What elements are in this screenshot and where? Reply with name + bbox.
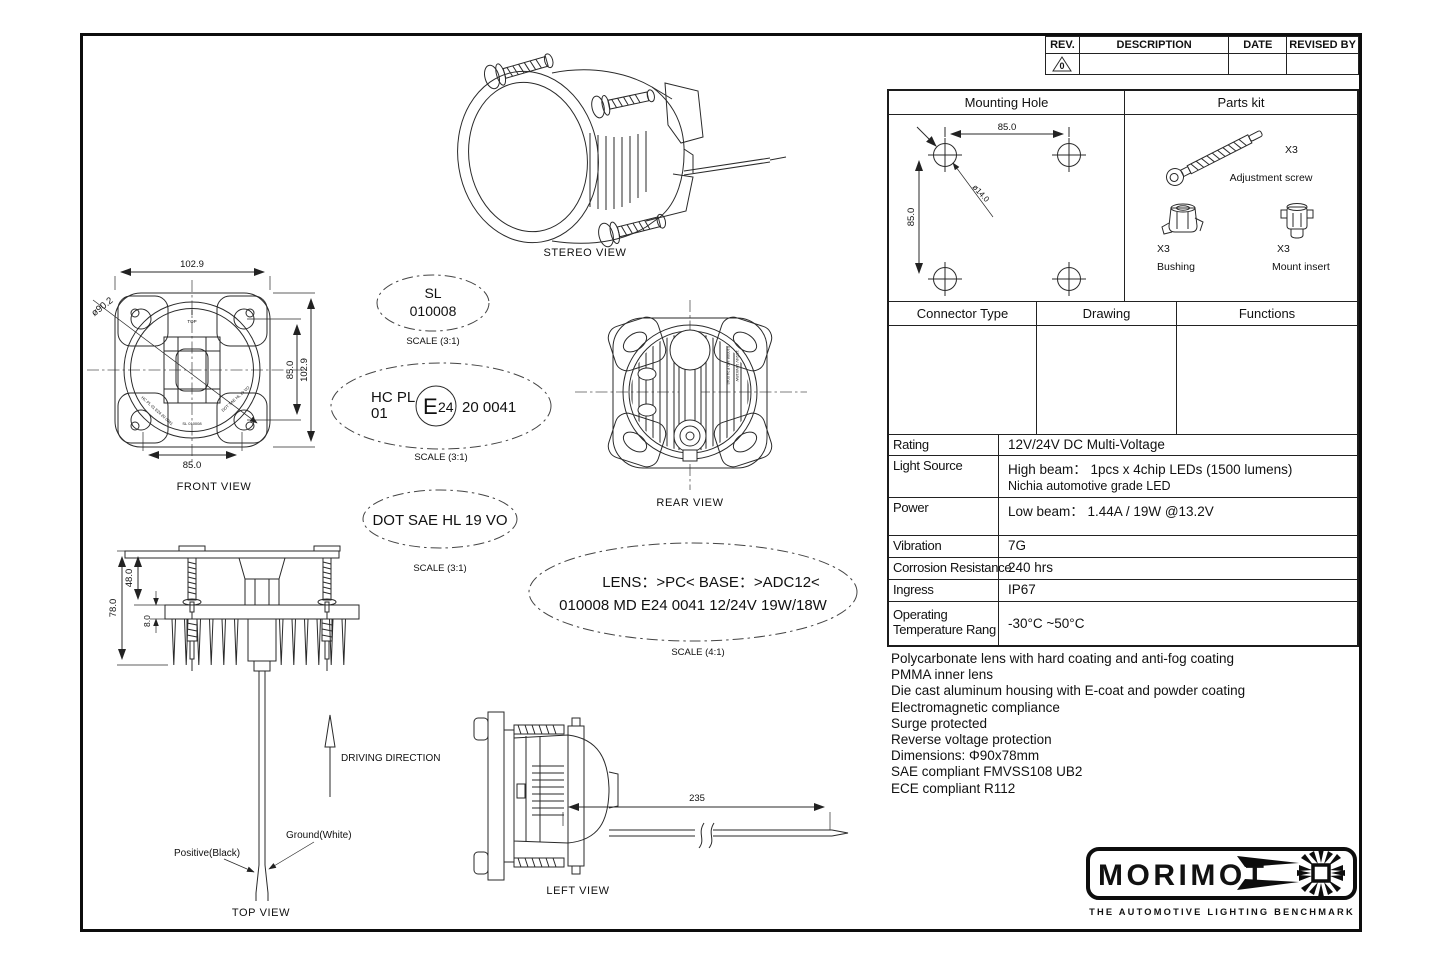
stereo-view: STEREO VIEW — [440, 45, 790, 265]
mount-insert-qty: X3 — [1277, 243, 1290, 255]
revision-data-row: 0 — [1046, 53, 1359, 74]
spec-label-operating-temp: Operating Temperature Rang — [889, 602, 999, 645]
spec-row-light-source: Light Source High beam： 1pcs x 4chip LED… — [889, 455, 1357, 497]
note-line: SAE compliant FMVSS108 UB2 — [891, 764, 1353, 780]
svg-text:0: 0 — [1060, 61, 1065, 71]
stereo-screw-top-left — [482, 48, 556, 90]
driving-direction-label: DRIVING DIRECTION — [341, 753, 440, 764]
hc-e-number: 24 — [438, 399, 454, 415]
sl-scale: SCALE (3:1) — [406, 336, 459, 347]
spec-label-power: Power — [889, 498, 999, 535]
front-dim-right-inner: 85.0 — [285, 361, 296, 380]
mount-insert-label: Mount insert — [1272, 261, 1330, 273]
lens-scale: SCALE (4:1) — [671, 647, 724, 658]
note-line: Reverse voltage protection — [891, 732, 1353, 748]
front-dim-right-outer: 102.9 — [299, 358, 310, 382]
spec-value-light-source: High beam： 1pcs x 4chip LEDs (1500 lumen… — [999, 456, 1357, 497]
note-line: Die cast aluminum housing with E-coat an… — [891, 683, 1353, 699]
spec-value-light-source-line2: Nichia automotive grade LED — [1008, 479, 1357, 493]
connector-header: Connector Type Drawing Functions — [889, 302, 1357, 326]
revision-mark-cell: 0 — [1046, 53, 1080, 74]
front-dim-diameter: ø90.2 — [90, 295, 116, 319]
note-line: Electromagnetic compliance — [891, 700, 1353, 716]
hc-badge: HC PL 01 E 24 20 0041 SCALE (3:1) — [328, 360, 554, 464]
note-line: Dimensions: Φ90x78mm — [891, 748, 1353, 764]
revision-col-description: DESCRIPTION — [1080, 36, 1230, 53]
spec-row-corrosion: Corrosion Resistance 240 hrs — [889, 557, 1357, 579]
front-dim-top: 102.9 — [180, 259, 204, 270]
lens-badge: LENS：>PC< BASE：>ADC12< 010008 MD E24 004… — [526, 540, 866, 660]
hc-scale: SCALE (3:1) — [414, 452, 467, 463]
burst-o-icon — [1297, 849, 1345, 897]
note-line: Polycarbonate lens with hard coating and… — [891, 651, 1353, 667]
bushing-qty: X3 — [1157, 243, 1170, 255]
drawing-col: Drawing — [1037, 302, 1177, 325]
revision-description-cell — [1080, 53, 1230, 74]
revision-table: REV. DESCRIPTION DATE REVISED BY 0 — [1045, 36, 1359, 75]
mounting-hole-title: Mounting Hole — [889, 91, 1125, 114]
top-dim-total: 78.0 — [108, 599, 119, 618]
top-view: 78.0 48.0 8.0 DRIVING DIRECTION Ground(W… — [108, 545, 450, 923]
left-dim-wire: 235 — [689, 793, 705, 804]
spec-value-corrosion: 240 hrs — [999, 558, 1357, 579]
mounting-dim-horizontal: 85.0 — [998, 122, 1017, 133]
logo-tagline: THE AUTOMOTIVE LIGHTING BENCHMARK — [1089, 907, 1355, 917]
sl-line2: 010008 — [410, 303, 457, 319]
rear-view: 010008 MD E24 0041 12/24V 19W/18W REAR V… — [575, 298, 807, 513]
revision-col-revised-by: REVISED BY — [1287, 36, 1359, 53]
spec-value-light-source-line1: High beam： 1pcs x 4chip LEDs (1500 lumen… — [1008, 458, 1357, 478]
spec-value-rating: 12V/24V DC Multi-Voltage — [999, 435, 1357, 455]
bushing-icon — [1162, 204, 1203, 234]
top-view-label: TOP VIEW — [232, 907, 290, 919]
revision-col-rev: REV. — [1046, 36, 1080, 53]
left-view: 235 LEFT VIEW — [468, 702, 864, 900]
spec-label-ingress: Ingress — [889, 580, 999, 601]
hc-e-mark: E — [423, 394, 438, 419]
rear-view-label: REAR VIEW — [656, 497, 723, 509]
front-etch-center: SL 010008 — [182, 421, 202, 426]
spec-row-ingress: Ingress IP67 — [889, 579, 1357, 601]
spec-label-vibration: Vibration — [889, 536, 999, 557]
revision-triangle-icon: 0 — [1051, 55, 1073, 73]
connector-type-cell — [889, 326, 1037, 434]
mounting-hole-diagram: 85.0 85.0 ø14.0 — [889, 115, 1123, 299]
front-dim-bottom: 85.0 — [183, 460, 202, 471]
adjustment-screw-qty: X3 — [1285, 144, 1298, 156]
spec-label-rating: Rating — [889, 435, 999, 455]
spec-label-light-source: Light Source — [889, 456, 999, 497]
mount-insert-icon — [1281, 204, 1313, 239]
right-panel: Mounting Hole Parts kit — [887, 89, 1359, 647]
connector-type-col: Connector Type — [889, 302, 1037, 325]
mounting-hole-cell: 85.0 85.0 ø14.0 — [889, 115, 1125, 301]
stereo-screw-top-mid — [590, 84, 657, 119]
parts-kit-diagram: X3 Adjustment screw X3 Bushing — [1125, 115, 1357, 299]
mounting-parts-body: 85.0 85.0 ø14.0 — [889, 115, 1357, 302]
spec-value-vibration: 7G — [999, 536, 1357, 557]
left-view-label: LEFT VIEW — [546, 885, 609, 897]
lens-line2: 010008 MD E24 0041 12/24V 19W/18W — [559, 597, 828, 614]
revision-header-row: REV. DESCRIPTION DATE REVISED BY — [1046, 36, 1359, 53]
lens-line1: LENS：>PC< BASE：>ADC12< — [602, 574, 820, 591]
revision-revised-cell — [1287, 53, 1359, 74]
spec-value-operating-temp: -30°C ~50°C — [999, 602, 1357, 645]
adjustment-screw-label: Adjustment screw — [1230, 172, 1313, 184]
mounting-dim-vertical: 85.0 — [906, 208, 917, 227]
front-view: TOP 102.9 85.0 85.0 102.9 ø90.2 HC PL 01… — [85, 252, 320, 497]
notes-block: Polycarbonate lens with hard coating and… — [891, 651, 1353, 797]
top-dim-upper: 48.0 — [124, 569, 135, 588]
rear-etch-line1: 010008 MD E24 0041 — [726, 346, 731, 386]
note-line: Surge protected — [891, 716, 1353, 732]
spec-row-power: Power Low beam： 1.44A / 19W @13.2V — [889, 497, 1357, 535]
drawing-sheet: REV. DESCRIPTION DATE REVISED BY 0 Mount… — [0, 0, 1445, 964]
revision-date-cell — [1229, 53, 1287, 74]
front-view-label: FRONT VIEW — [177, 481, 252, 493]
spec-value-power: Low beam： 1.44A / 19W @13.2V — [999, 498, 1357, 535]
spec-row-rating: Rating 12V/24V DC Multi-Voltage — [889, 435, 1357, 455]
bushing-label: Bushing — [1157, 261, 1195, 273]
functions-col: Functions — [1177, 302, 1357, 325]
spec-table: Rating 12V/24V DC Multi-Voltage Light So… — [889, 435, 1357, 645]
note-line: PMMA inner lens — [891, 667, 1353, 683]
hc-right: 20 0041 — [462, 399, 516, 416]
spec-value-ingress: IP67 — [999, 580, 1357, 601]
mounting-parts-header: Mounting Hole Parts kit — [889, 91, 1357, 115]
functions-cell — [1177, 326, 1357, 434]
revision-col-date: DATE — [1229, 36, 1287, 53]
note-line: ECE compliant R112 — [891, 781, 1353, 797]
stereo-wire — [684, 157, 786, 175]
morimoto-logo: MORIMOT THE AUTOMOTIVE LIGHTING BENCHMAR… — [1085, 846, 1360, 922]
spec-label-corrosion: Corrosion Resistance — [889, 558, 999, 579]
spec-row-operating-temp: Operating Temperature Rang -30°C ~50°C — [889, 601, 1357, 645]
hc-left-bottom: 01 — [371, 405, 388, 422]
sl-line1: SL — [424, 285, 441, 301]
parts-kit-cell: X3 Adjustment screw X3 Bushing — [1125, 115, 1357, 301]
dot-text: DOT SAE HL 19 VO — [372, 512, 507, 529]
rear-etch-line2: 12/24V 19W/18W — [735, 350, 740, 382]
stereo-view-label: STEREO VIEW — [544, 247, 627, 259]
parts-kit-title: Parts kit — [1125, 91, 1357, 114]
connector-body — [889, 326, 1357, 435]
spec-row-vibration: Vibration 7G — [889, 535, 1357, 557]
stereo-screw-bottom — [596, 209, 668, 249]
positive-label: Positive(Black) — [174, 848, 240, 859]
hc-left-top: HC PL — [371, 389, 415, 406]
ground-label: Ground(White) — [286, 830, 352, 841]
top-dim-flange: 8.0 — [142, 615, 152, 627]
drawing-cell — [1037, 326, 1177, 434]
front-top-mark: TOP — [187, 319, 196, 324]
sl-badge: SL 010008 SCALE (3:1) — [372, 270, 497, 348]
